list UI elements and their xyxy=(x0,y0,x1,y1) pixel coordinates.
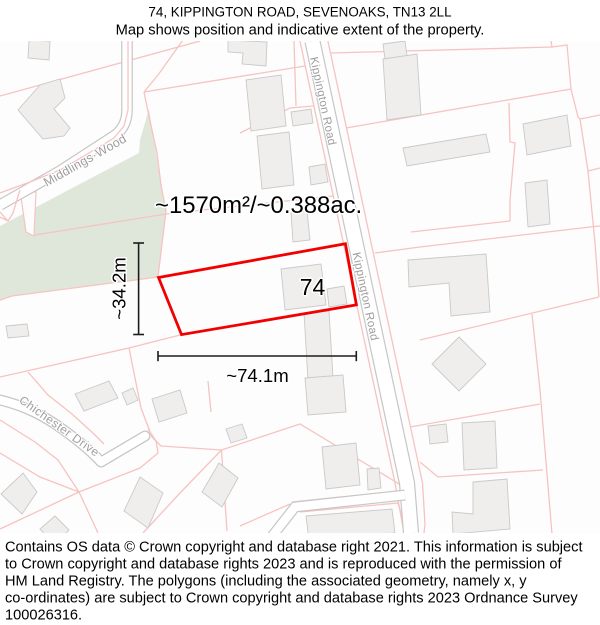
svg-text:HM Land Registry. The polygons: HM Land Registry. The polygons (includin… xyxy=(5,574,527,590)
svg-text:~1570m²/~0.388ac.: ~1570m²/~0.388ac. xyxy=(155,192,362,219)
svg-text:74: 74 xyxy=(300,274,326,300)
svg-text:Contains OS data © Crown copyr: Contains OS data © Crown copyright and d… xyxy=(5,540,583,556)
svg-text:~34.2m: ~34.2m xyxy=(109,257,130,320)
svg-text:~74.1m: ~74.1m xyxy=(226,365,289,386)
svg-text:100026316.: 100026316. xyxy=(5,608,82,624)
svg-text:Map shows position and indicat: Map shows position and indicative extent… xyxy=(116,23,485,39)
svg-text:co-ordinates) are subject to C: co-ordinates) are subject to Crown copyr… xyxy=(5,591,578,607)
svg-text:to Crown copyright and databas: to Crown copyright and database rights 2… xyxy=(5,557,562,573)
svg-text:74, KIPPINGTON ROAD, SEVENOAKS: 74, KIPPINGTON ROAD, SEVENOAKS, TN13 2LL xyxy=(148,5,451,20)
